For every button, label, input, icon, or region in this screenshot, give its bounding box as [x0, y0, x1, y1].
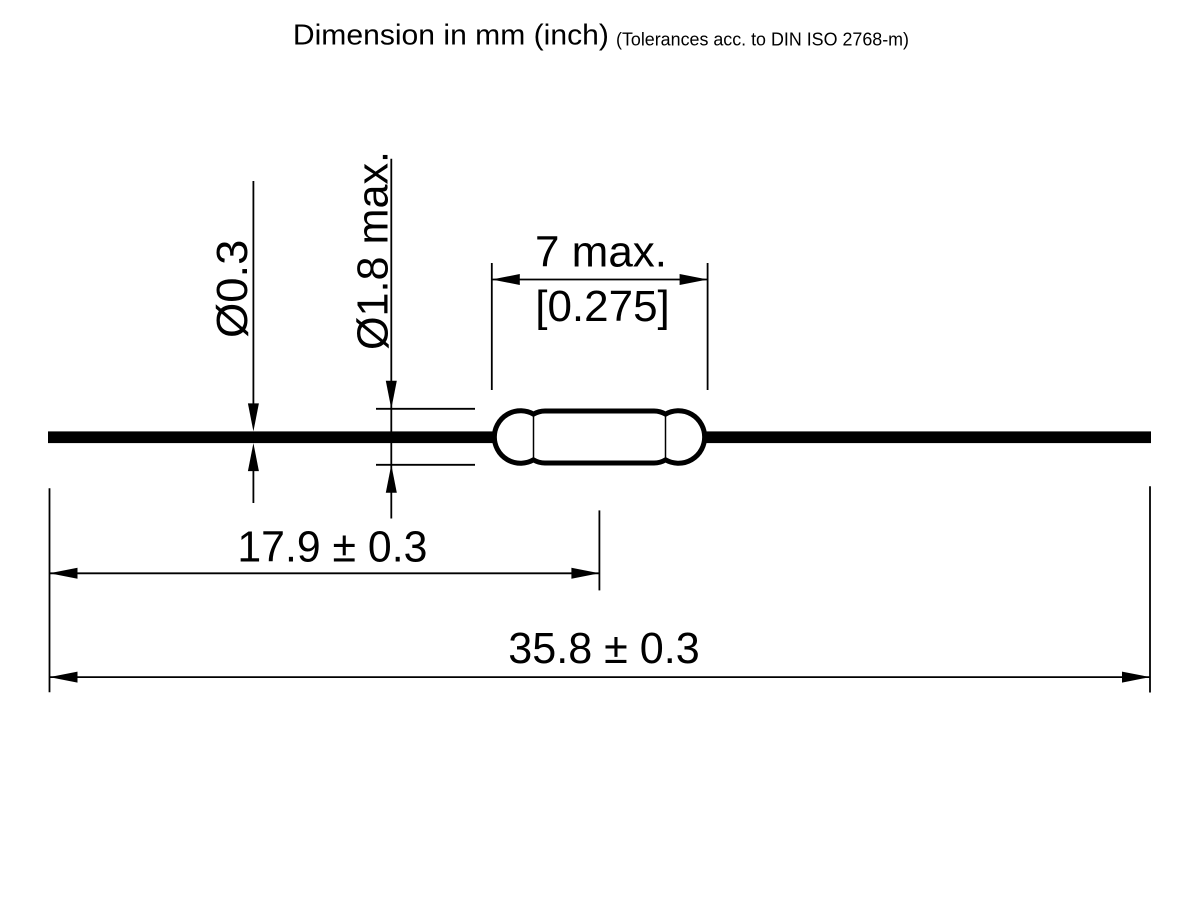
svg-text:35.8 ± 0.3: 35.8 ± 0.3 — [508, 624, 700, 673]
svg-text:7 max.: 7 max. — [535, 228, 667, 277]
svg-text:Ø1.8 max.: Ø1.8 max. — [349, 151, 398, 350]
svg-text:17.9 ± 0.3: 17.9 ± 0.3 — [237, 523, 427, 572]
svg-text:Ø0.3: Ø0.3 — [208, 240, 257, 338]
svg-text:Dimension in mm (inch): Dimension in mm (inch) — [293, 20, 609, 52]
svg-text:[0.275]: [0.275] — [535, 282, 670, 331]
svg-text:(Tolerances acc. to DIN ISO 27: (Tolerances acc. to DIN ISO 2768-m) — [616, 29, 909, 50]
